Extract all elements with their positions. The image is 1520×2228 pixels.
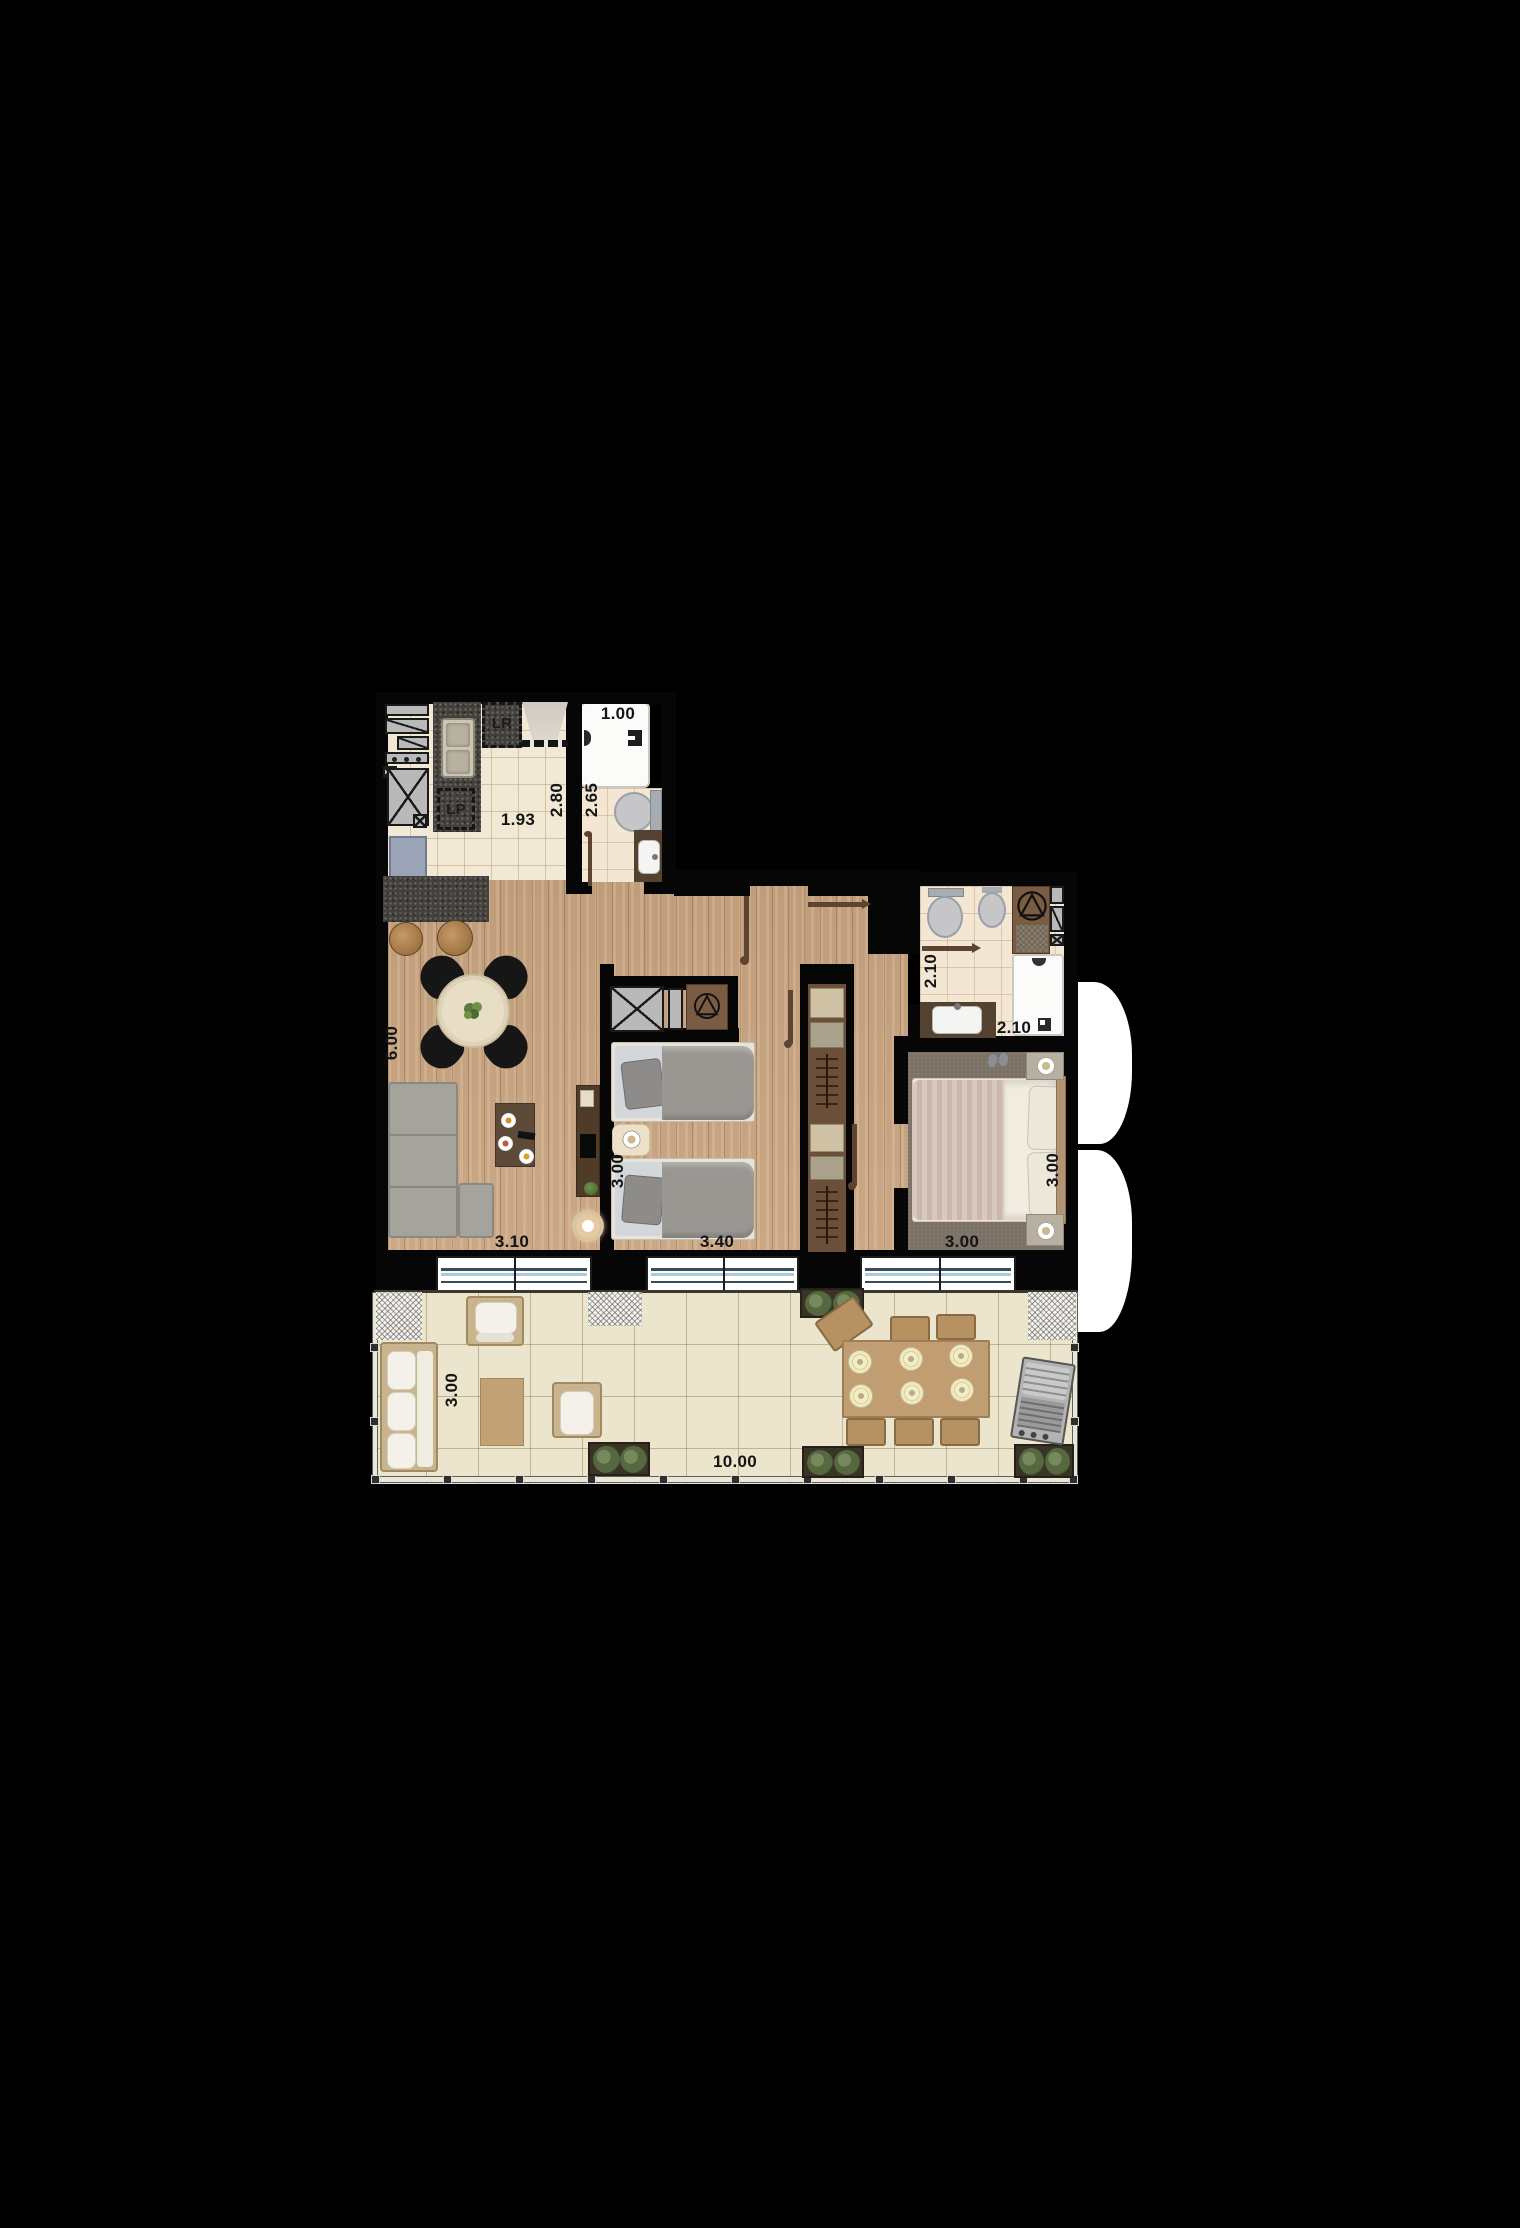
dim-terrace-depth: 3.00 [443,1368,461,1412]
sofa-cushion [387,1392,416,1431]
window-living [436,1256,592,1292]
plant-bush-icon [834,1450,860,1475]
burner-dot-icon [404,757,409,762]
outdoor-armchair [466,1296,524,1346]
armchair-cushion [475,1302,517,1334]
railing-post [876,1476,883,1483]
door-swing-arrow [862,899,871,909]
place-setting [848,1383,874,1409]
window-divider [723,1258,725,1290]
wall-master-left-upper [894,1052,908,1124]
outdoor-sofa [380,1342,438,1472]
kitchen-burner-strip [385,752,429,764]
hanger-rail-icon [812,1052,842,1110]
railing-post [1071,1344,1078,1351]
door-swing-arrow [972,943,981,953]
door-leaf-entry [744,896,749,960]
wall-hall-top-b [808,884,868,896]
door-hinge [584,831,592,837]
drain-notch [1040,1020,1045,1025]
burner-dot-icon [392,757,397,762]
sofa-seam [390,1186,456,1188]
dim-bedroom2-width: 3.40 [693,1233,741,1251]
place-setting [898,1346,924,1372]
door-leaf-master [852,1124,857,1186]
table-lamp-icon [621,1129,642,1150]
label-washer: LR [482,714,522,732]
terrace-railing-bottom [372,1476,1078,1483]
console-plant-icon [584,1182,598,1195]
tv-icon [580,1134,596,1158]
wall-ensuite-left-upper [908,886,920,950]
laundry-closet [1012,886,1050,954]
wall-bath-right [662,692,676,892]
dim-shower: 1.00 [588,705,648,723]
floor-lamp-icon [572,1210,604,1242]
door-knob [740,956,749,965]
wardrobe-symbol [610,986,664,1032]
terrace-chair [936,1314,976,1340]
sofa-cushion [387,1351,416,1390]
terrace-chair [940,1418,980,1446]
window-master [860,1256,1016,1292]
kitchen-bar-counter [383,876,489,922]
dim-kitchen-corridor: 2.80 [548,778,566,822]
pillow [620,1058,666,1111]
wall-kitchen-bath-divider [566,700,582,890]
projection-hatch [588,1292,642,1326]
dim-bedroom2-depth: 3.00 [609,1149,627,1193]
planter [1014,1444,1074,1478]
window-frame-line [865,1268,1011,1271]
window-divider [939,1258,941,1290]
faucet-dot-ensuite [954,1003,961,1010]
dim-kitchen-width: 1.93 [494,811,542,829]
toilet-service [614,792,654,832]
faucet-dot-service [652,854,658,860]
railing-post [371,1344,378,1351]
plate [519,1149,534,1164]
sofa-seat [417,1351,433,1467]
plant-bush-icon [1019,1448,1044,1475]
table-lamp-icon [1035,1220,1057,1242]
sink-basin [446,750,470,774]
plant-bush-icon [620,1446,647,1473]
exterior-shape [1078,982,1132,1144]
railing-post [516,1476,523,1483]
planter [588,1442,650,1476]
label-dishwasher: LP [437,800,475,818]
water-heater-icon [692,991,722,1021]
washing-machine-icon [1015,889,1049,923]
bidet-ensuite [978,892,1006,928]
bar-stool [389,922,423,956]
kitchen-cabinet-diagonal-2 [397,736,429,750]
kitchen-cart [389,836,427,880]
planter [802,1446,864,1478]
kitchen-small-box-2 [413,814,427,828]
shelf-icon [1050,886,1064,904]
dim-ensuite-width: 2.10 [990,1019,1038,1037]
door-knob [848,1182,856,1190]
grill-knob [1042,1433,1049,1440]
dim-master-width: 3.00 [938,1233,986,1251]
wall-wardrobe-top [800,964,854,984]
laundry-hamper [1016,925,1048,952]
wall-master-left-lower [894,1188,908,1252]
water-heater-shelf [686,984,728,1030]
plant-bush-icon [1045,1448,1070,1475]
grill-knob [1030,1432,1037,1439]
sofa-seam [390,1134,456,1136]
twin-bed-blanket [662,1162,754,1238]
hanger-rail-icon [812,1184,842,1246]
folded-clothes [810,1156,844,1180]
dim-master-depth: 3.00 [1044,1148,1062,1192]
door-leaf-bedroom2 [788,990,793,1044]
shelf-diagonal-icon [1050,906,1064,932]
door-knob [784,1040,792,1048]
terrace-top-line [374,1290,1078,1293]
valve-notch [628,736,635,740]
folded-clothes [810,988,844,1018]
table-lamp-icon [1035,1055,1057,1077]
railing-post [1071,1418,1078,1425]
terrace-chair [890,1316,930,1342]
folded-clothes [810,1022,844,1048]
folded-clothes [810,1124,844,1152]
outdoor-coffee-table [480,1378,524,1446]
railing-post [371,1418,378,1425]
window-bedroom2 [646,1256,799,1292]
projection-hatch [1028,1292,1076,1340]
dim-living-length: 6.00 [383,1021,401,1065]
wall-hall-top-a [674,884,750,896]
shelf-bowtie-icon [1050,934,1064,946]
floor-plan-canvas: 1.00 2.80 2.65 1.93 LR LP 2.10 2.10 6.00… [0,0,1520,2228]
ironing-panel [668,988,683,1030]
coffee-table [495,1103,535,1167]
console-decor [580,1090,594,1107]
sofa [388,1082,458,1238]
table-plant-icon [458,996,488,1026]
exterior-shape [1078,1150,1132,1332]
wall-wardrobe-right [846,964,854,1252]
armchair-bolster [476,1333,514,1342]
railing-post [444,1476,451,1483]
bar-stool [437,920,473,956]
wall-right [1064,872,1078,1264]
place-setting [847,1349,873,1375]
door-leaf-service-bath [588,834,592,886]
terrace-chair [894,1418,934,1446]
plate [501,1113,516,1128]
railing-post [732,1476,739,1483]
plate [498,1136,513,1151]
grill-lid [1022,1362,1070,1400]
plant-bush-icon [807,1450,833,1475]
railing-post [372,1476,379,1483]
projection-hatch [376,1292,422,1340]
master-bed-blanket [912,1080,1004,1220]
window-frame-line [865,1281,1011,1283]
kitchen-sink [441,718,475,778]
twin-bed-blanket [662,1046,754,1120]
plant-bush-icon [593,1446,620,1473]
cooktop-strip [522,740,568,747]
outdoor-armchair [552,1382,602,1438]
sofa-chaise [458,1183,494,1238]
kitchen-cabinet-diagonal [385,718,429,734]
dim-living-width: 3.10 [488,1233,536,1251]
window-glass-line [865,1273,1011,1276]
railing-post [588,1476,595,1483]
grill-knob [1018,1430,1025,1437]
window-divider [514,1258,516,1290]
sink-basin [446,723,470,747]
dim-service-bath: 2.65 [583,778,601,822]
shower-valve-icon [628,730,642,746]
wall-top-right-outer [868,872,1078,886]
place-setting [948,1343,974,1369]
shower-drain-ensuite [1038,1018,1051,1031]
kitchen-cabinet [385,704,429,716]
place-setting [899,1380,925,1406]
burner-dot-icon [416,757,421,762]
place-setting [949,1377,975,1403]
toilet-tank-service [650,790,662,834]
wall-ensuite-master-divider [894,1036,1078,1052]
washbasin-ensuite [932,1006,982,1034]
terrace-chair [846,1418,886,1446]
railing-post [948,1476,955,1483]
dim-terrace-width: 10.00 [705,1453,765,1471]
railing-post [660,1476,667,1483]
door-leaf-hall [808,902,866,907]
toilet-ensuite [927,896,963,938]
sofa-cushion [387,1433,416,1469]
dim-ensuite-length: 2.10 [922,949,940,993]
armchair-cushion [560,1391,594,1435]
remote-icon [518,1131,536,1140]
grill-grate [1017,1397,1065,1434]
